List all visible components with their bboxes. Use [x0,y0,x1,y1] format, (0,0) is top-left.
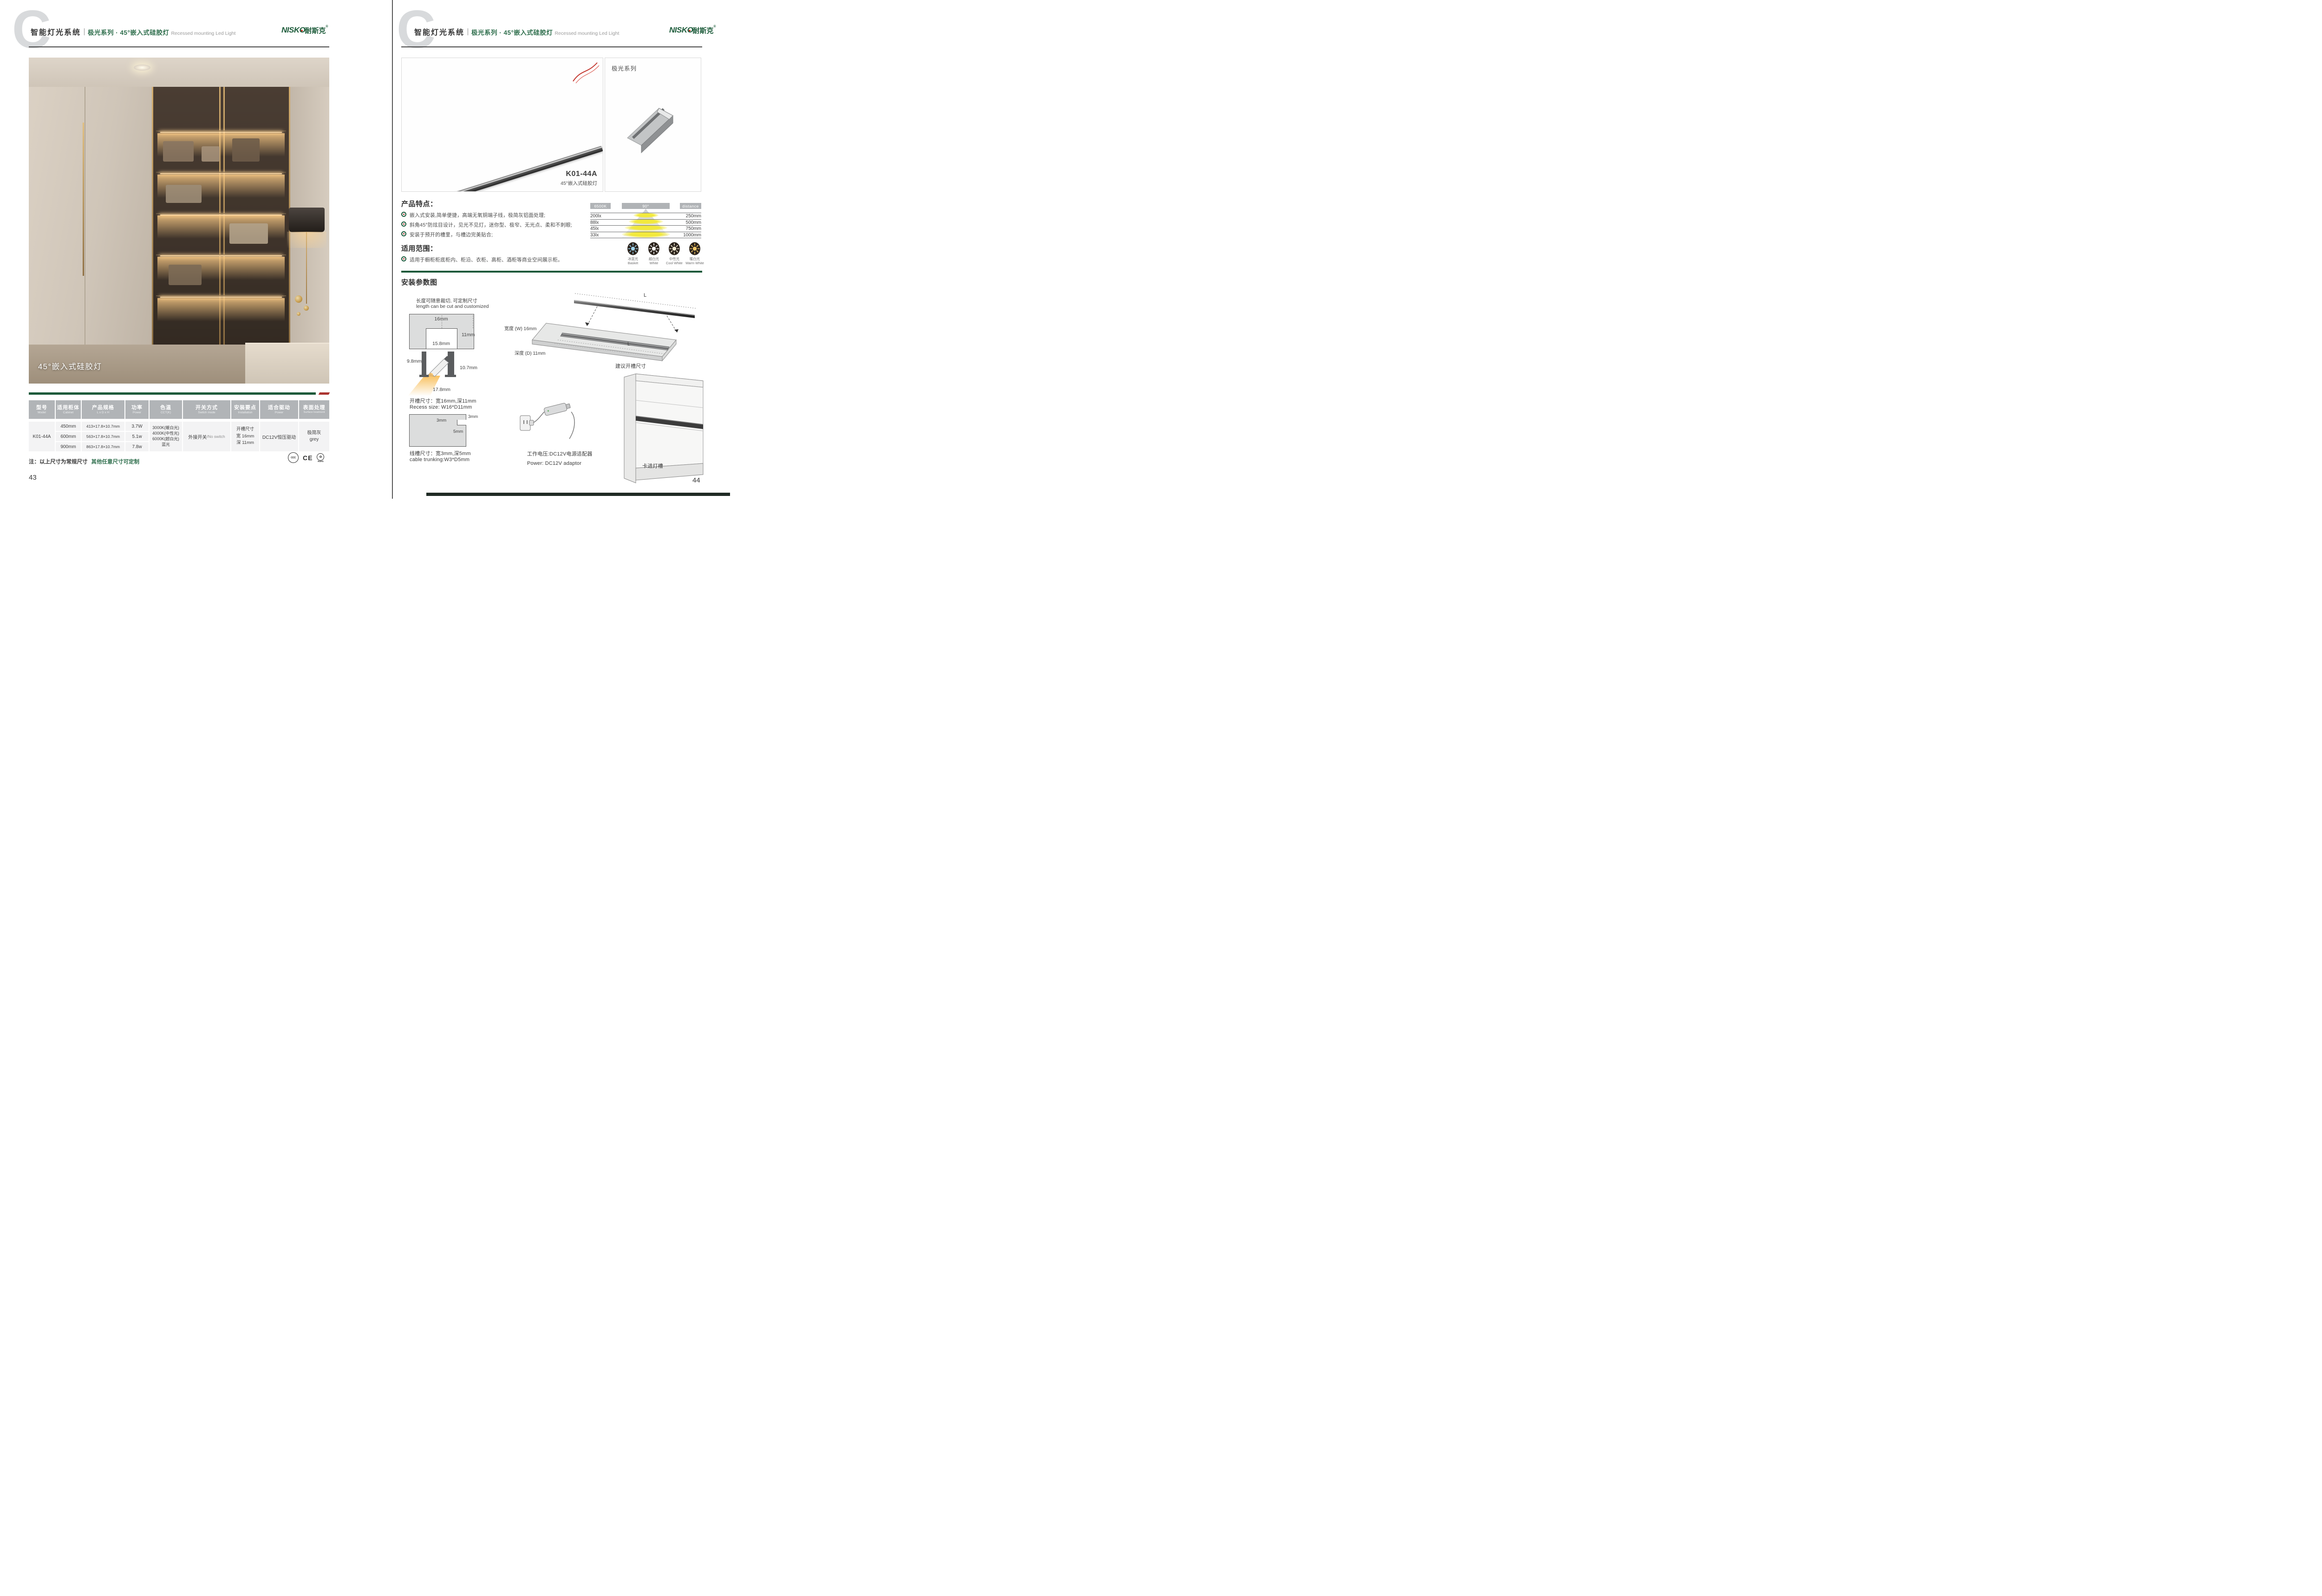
product-spec: 863×17.8×10.7mm [82,442,124,451]
power-adaptor-diagram [517,396,578,447]
footnote: 注：以上尺寸为常规尺寸其他任意尺寸可定制 [29,458,139,465]
power-watt: 7.8w [125,442,149,451]
groove-board-diagram [509,292,704,371]
lux-value: 33lx [590,233,599,238]
feature-bullet-icon [401,231,406,236]
feature-text: 安装于预开的槽里，与槽边完美贴合; [410,231,493,238]
feature-item: 斜角45°防炫目设计，见光不见灯，迷你型、极窄、无光点、柔和不刺眼; [401,221,572,228]
door-seam [85,87,85,345]
cct-label-en: Warm White [681,261,708,265]
page-number-right: 44 [692,476,700,484]
page-header: 智能灯光系统 极光系列 · 45°嵌入式硅胶灯 Recessed mountin… [414,26,619,37]
registered-mark: ® [326,25,328,28]
folded-clothes [169,265,202,285]
cabinet-shelf [156,295,286,296]
shelf-led-line [160,173,282,174]
install-line: 深 11mm [236,440,254,447]
showcase-photo: 45°嵌入式硅胶灯 [29,58,329,384]
scope-item: 适用于橱柜柜底柜内、柜沿、衣柜、高柜、酒柜等商业空间展示柜。 [401,256,563,263]
cct-icon-warm-white [689,241,701,256]
catalog-spread: C 智能灯光系统 极光系列 · 45°嵌入式硅胶灯 Recessed mount… [0,0,730,499]
col-header-driver: 适合驱动Power [260,400,298,419]
product-caption: K01-44A 45°嵌入式硅胶灯 [561,170,597,187]
features-title: 产品特点： [401,199,437,208]
page-header: 智能灯光系统 极光系列 · 45°嵌入式硅胶灯 Recessed mountin… [31,26,235,37]
recess-size-cn: 开槽尺寸：宽16mm,深11mm [410,397,476,404]
dim-16mm: 16mm [426,316,457,322]
cell-model: K01-44A [29,422,55,451]
ccc-certification-icon: CCC [288,452,299,463]
cct-option: 6000K(超白光) [152,436,179,442]
board-depth-label: 深度 (D) 11mm [515,349,545,356]
gold-frame [152,87,153,345]
col-header-installation: 安装要点Installation [231,400,259,419]
feature-text: 斜角45°防炫目设计，见光不见灯，迷你型、极窄、无光点、柔和不刺眼; [410,221,572,228]
floor-lamp-pole [306,232,307,304]
photo-ceiling [29,58,329,87]
header-rule [401,46,702,47]
header-divider [468,28,468,35]
cut-note-cn: 长度可随意裁切, 可定制尺寸 [416,297,477,304]
power-voltage-en: Power: DC12V adaptor [527,461,581,466]
length-label-groove: L [627,341,630,347]
brand-logo: NISKO 耐斯克 ® [669,26,716,35]
dim-10-7mm: 10.7mm [460,365,477,371]
header-system-title: 智能灯光系统 [31,26,81,37]
col-header-model: 型号Model [29,400,55,419]
surface-en: grey [310,436,319,443]
board-caption: 建议开槽尺寸 [594,362,668,370]
shelf-led-line [160,132,282,133]
cct-label-cn: 暖白光 [681,257,708,261]
feature-bullet-icon [401,221,406,227]
cabinet-size: 450mm [56,422,81,431]
col-header-power: 功率Power [125,400,149,419]
dim-5mm: 5mm [453,429,463,434]
page-number-left: 43 [29,474,37,482]
beam-chart-distance-box: distance [680,203,701,209]
shelf-glow [157,298,285,321]
lux-value: 88lx [590,220,599,225]
series-label: 极光系列 [612,64,637,72]
cell-surface: 极简灰 grey [299,422,329,451]
cabinet-shelf [156,213,286,214]
distance-value: 1000mm [655,233,701,238]
cct-label: 暖白光 Warm White [681,257,708,266]
cell-installation: 开槽尺寸 宽 16mm 深 11mm [231,422,259,451]
board-width-label: 宽度 (W) 16mm [504,325,536,332]
handbag [232,138,260,162]
length-label-bar: L [644,293,646,298]
section-divider-green [401,271,702,273]
page-44: C 智能灯光系统 极光系列 · 45°嵌入式硅胶灯 Recessed mount… [392,0,730,499]
scope-bullet-icon [401,256,406,261]
red-wires-icon [571,60,601,86]
feature-text: 嵌入式安装,简单便捷，高端无氧铜端子线，极简灰铝面处理; [410,211,545,219]
cabinet-shelf [156,172,286,173]
aluminum-profile-icon [623,95,683,160]
dim-3mm-right: 3mm [468,414,478,419]
footnote-main: 注：以上尺寸为常规尺寸 [29,459,88,465]
folded-clothes [229,223,268,244]
dim-11mm: 11mm [462,332,475,338]
accent-bar-red [319,392,330,395]
install-line: 开槽尺寸 [236,426,254,433]
cell-cabinet-sizes: 450mm 600mm 900mm [56,422,81,451]
dash-guide [473,315,473,328]
rohs-flower-glyph: ✿ [317,453,324,461]
power-voltage-cn: 工作电压:DC12V电源适配器 [527,450,593,457]
cct-option: 蓝光 [162,442,170,448]
power-watt: 3.7W [125,422,149,431]
photo-caption: 45°嵌入式硅胶灯 [38,360,102,371]
certification-marks: CCC CE ✿ RoHS [288,452,324,463]
cct-icon-cool-white [668,241,680,256]
surface-cn: 极简灰 [307,430,321,436]
cut-note-en: length can be cut and customized [416,304,489,309]
shelf-led-line [160,297,282,298]
feature-item: 嵌入式安装,简单便捷，高端无氧铜端子线，极简灰铝面处理; [401,211,545,219]
dim-15-8mm: 15.8mm [426,341,457,346]
shelf-led-line [160,215,282,215]
trunking-size-en: cable trunking:W3*D5mm [410,457,470,463]
registered-mark: ® [713,25,716,28]
cabinet-size: 900mm [56,442,81,451]
col-header-cct: 色温CCT(K) [150,400,182,419]
product-spec: 563×17.8×10.7mm [82,432,124,441]
distance-value: 750mm [655,226,701,231]
power-watt: 5.1w [125,432,149,441]
col-header-cabinet: 适用柜体Cabinet [56,400,81,419]
beam-chart-angle-box: 90° [622,203,670,209]
feature-bullet-icon [401,212,406,217]
recess-size-en: Recess size: W16*D11mm [410,404,472,410]
product-photo-main: K01-44A 45°嵌入式硅胶灯 [401,58,603,192]
install-title: 安装参数图 [401,277,437,287]
gold-door-handle [83,123,84,276]
cell-specs: 413×17.8×10.7mm 563×17.8×10.7mm 863×17.8… [82,422,124,451]
scope-title: 适用范围： [401,243,437,253]
header-rule [29,46,329,47]
accent-bar-green [29,392,316,395]
folded-clothes [166,185,202,203]
trunking-notch [457,420,466,425]
footnote-custom: 其他任意尺寸可定制 [91,459,140,465]
chart-gridline [590,238,701,238]
trunking-size-cn: 线槽尺寸：宽3mm,深5mm [410,449,471,457]
shelf-led-line [160,255,282,256]
brand-logo-cn: 耐斯克 [692,26,713,35]
cabinet-shelf [156,130,286,131]
gold-decor [295,295,302,303]
cct-icon-ice-blue [627,241,639,256]
product-name: 45°嵌入式硅胶灯 [561,180,597,187]
header-system-title: 智能灯光系统 [414,26,464,37]
clip-groove-label: 卡进灯槽 [642,462,663,469]
col-header-spec: 产品规格L x D x H [82,400,124,419]
wardrobe-cream-doors [29,87,152,345]
lux-value: 200lx [590,214,601,219]
header-divider [84,28,85,35]
chart-gridline [590,213,701,213]
dim-9-8mm: 9.8mm [407,358,422,364]
cct-icon-white [648,241,660,256]
rohs-label: RoHS [318,460,324,463]
glass-display-cabinet [152,87,290,345]
product-photo-profile: 极光系列 [605,58,701,192]
folded-clothes [202,146,220,162]
ce-certification-icon: CE [303,454,313,462]
gold-decor [297,312,300,316]
rohs-certification-icon: ✿ RoHS [317,453,324,463]
header-series-subtitle-en: Recessed mounting Led Light [554,31,619,36]
switch-mode-cn: 外接开关 [188,433,207,440]
dim-17-8mm: 17.8mm [433,387,450,392]
header-series-title: 极光系列 · 45°嵌入式硅胶灯 [471,27,553,37]
spec-table-body: K01-44A 450mm 600mm 900mm 413×17.8×10.7m… [29,422,329,451]
product-model: K01-44A [561,170,597,178]
header-series-title: 极光系列 · 45°嵌入式硅胶灯 [88,27,169,37]
bed-bench [245,343,329,384]
brand-logo: NISKO 耐斯克 ® [281,26,328,35]
cell-driver: DC12V恒压驱动 [260,422,298,451]
cct-option: 3000K(暖白光) [152,425,179,431]
cct-option: 4000K(中性光) [152,431,179,436]
feature-item: 安装于预开的槽里，与槽边完美贴合; [401,231,493,238]
switch-mode-en: /No switch [207,434,225,439]
gold-decor [304,306,309,311]
distance-value: 500mm [655,220,701,225]
floor-lamp-shade [289,208,325,232]
install-line: 宽 16mm [236,433,254,440]
bottom-accent-bar [426,493,730,496]
cell-cct: 3000K(暖白光) 4000K(中性光) 6000K(超白光) 蓝光 [150,422,182,451]
cell-switch: 外接开关 /No switch [183,422,230,451]
chart-gridline [590,225,701,226]
scope-text: 适用于橱柜柜底柜内、柜沿、衣柜、高柜、酒柜等商业空间展示柜。 [410,256,563,263]
cell-powers: 3.7W 5.1w 7.8w [125,422,149,451]
spec-table-header: 型号Model 适用柜体Cabinet 产品规格L x D x H 功率Powe… [29,400,329,419]
cabinet-size: 600mm [56,432,81,441]
lux-value: 45lx [590,226,599,231]
folded-clothes [163,141,193,162]
distance-value: 250mm [655,214,701,219]
beam-chart-cct-box: 6500K [590,203,611,209]
col-header-surface: 表面处理Surface treatment [299,400,329,419]
brand-logo-cn: 耐斯克 [305,26,326,35]
header-series-subtitle-en: Recessed mounting Led Light [171,31,235,36]
col-header-switch: 开关方式Switch mode [183,400,230,419]
dim-3mm-left: 3mm [437,418,446,423]
cabinet-shelf [156,254,286,255]
product-spec: 413×17.8×10.7mm [82,422,124,431]
page-43: C 智能灯光系统 极光系列 · 45°嵌入式硅胶灯 Recessed mount… [0,0,392,499]
bed-bench-edge [245,343,329,344]
